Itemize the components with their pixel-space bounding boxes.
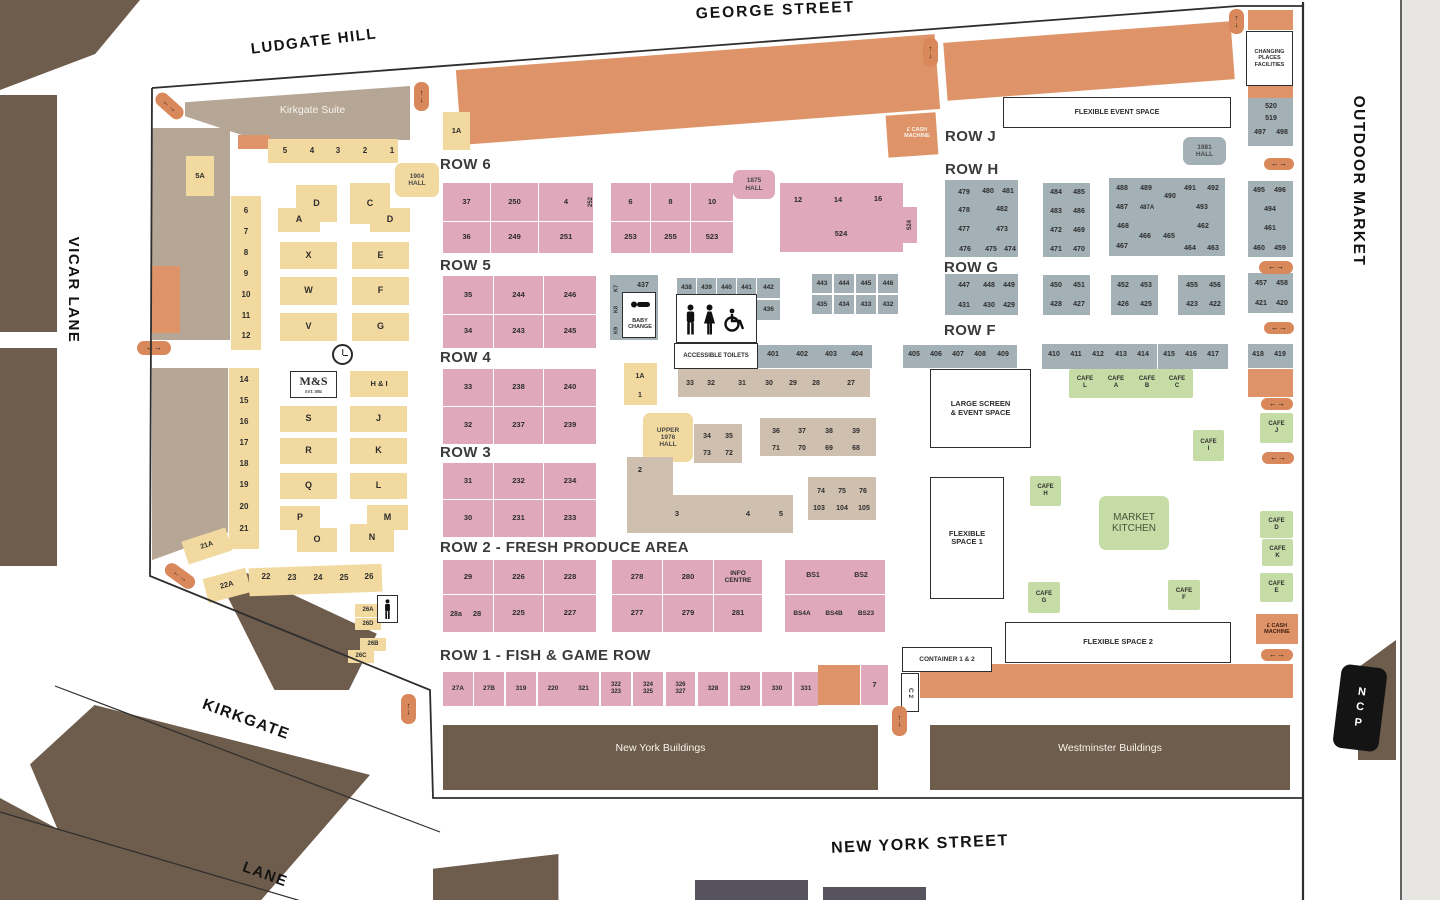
stall-37: 37 (443, 183, 490, 221)
market-floor-plan: Kirkgate SuiteNew York BuildingsWestmins… (0, 0, 1440, 900)
cafe-k: CAFE K (1262, 539, 1293, 566)
stall-8: 8 (651, 183, 690, 221)
stall-n: N (350, 524, 394, 552)
stall-35: 35 (443, 276, 493, 314)
stall-239: 239 (544, 407, 596, 444)
stall-401: 401 (762, 350, 784, 360)
stall-32: 32 (702, 378, 720, 389)
stall-24: 24 (309, 573, 327, 584)
stall-237: 237 (494, 407, 543, 444)
stall-238: 238 (494, 369, 543, 406)
stall-20: 20 (234, 501, 254, 513)
stall-422: 422 (1205, 300, 1225, 310)
stall-324-325: 324 325 (633, 672, 663, 706)
stall-253: 253 (611, 222, 650, 253)
stall-403: 403 (820, 350, 842, 360)
stall-405: 405 (904, 350, 924, 360)
stall-16: 16 (868, 194, 888, 205)
stall-7: 7 (236, 226, 256, 238)
stall-279: 279 (663, 595, 713, 632)
stall-9: 9 (236, 268, 256, 280)
stall-6: 6 (236, 205, 256, 217)
westminster-buildings (930, 725, 1290, 790)
stall-5a: 5A (186, 156, 214, 196)
market-kitchen: MARKET KITCHEN (1099, 496, 1169, 550)
stall-w: W (280, 277, 337, 305)
cafe-i: CAFE I (1193, 430, 1224, 461)
stall-228: 228 (544, 560, 596, 594)
stall-70: 70 (793, 443, 811, 454)
cafe-d: CAFE D (1260, 511, 1293, 538)
stall-402: 402 (791, 350, 813, 360)
stall-d: D (370, 208, 410, 232)
row-3-heading: ROW 3 (440, 444, 520, 462)
stall-3: 3 (330, 146, 346, 157)
stall-430: 430 (979, 301, 999, 311)
stall-71: 71 (767, 443, 785, 454)
stall-10: 10 (236, 289, 256, 301)
entrance-arrow: ↑ ↓ (923, 38, 938, 67)
stall-481: 481 (998, 187, 1018, 197)
accessible-toilets-label: ACCESSIBLE TOILETS (674, 343, 758, 369)
stall-455: 455 (1182, 281, 1202, 291)
female-icon (703, 304, 716, 336)
large-screen-event-space: LARGE SCREEN & EVENT SPACE (930, 369, 1031, 448)
stall-486: 486 (1069, 207, 1089, 217)
stall-30: 30 (443, 500, 493, 537)
stall-k8: K8 (613, 300, 622, 320)
cafe-j: CAFE J (1260, 413, 1293, 443)
stall-331: 331 (794, 672, 818, 706)
stall-456: 456 (1205, 281, 1225, 291)
stall-3: 3 (670, 509, 684, 520)
stall-244: 244 (494, 276, 543, 314)
stall-33: 33 (443, 369, 493, 406)
stall-490: 490 (1160, 192, 1180, 202)
stall-477: 477 (953, 225, 975, 235)
entrance-arrow: ←→ (1262, 452, 1294, 464)
stall-bs4b: BS4B (819, 608, 849, 620)
stall-1a: 1A (443, 112, 470, 150)
stall-17: 17 (234, 437, 254, 449)
ms-est-label: EST. 1884 (292, 389, 335, 395)
stall-36: 36 (443, 222, 490, 253)
flexible-space-1: FLEXIBLE SPACE 1 (930, 477, 1004, 599)
stall-252: 252 (586, 189, 596, 215)
entrance-arrow: ←→ (1264, 322, 1294, 334)
ludgate-hill: LUDGATE HILL (237, 21, 391, 63)
stall-495: 495 (1249, 186, 1269, 196)
stall-69: 69 (820, 443, 838, 454)
stall-21: 21 (234, 523, 254, 535)
stall-493: 493 (1192, 203, 1212, 213)
stall-104: 104 (831, 503, 853, 514)
wheelchair-icon (723, 308, 746, 334)
stall-f: F (352, 277, 409, 305)
entrance-arrow: ↑ ↓ (414, 82, 429, 111)
cash-machine-right: £ CASH MACHINE (1256, 614, 1298, 644)
stall-482: 482 (991, 205, 1013, 215)
flexible-event-space: FLEXIBLE EVENT SPACE (1003, 97, 1231, 128)
ms-label: M&S (292, 374, 335, 389)
stall-469: 469 (1069, 226, 1089, 236)
stall-460: 460 (1249, 244, 1269, 254)
row-1-heading: ROW 1 - FISH & GAME ROW (440, 647, 700, 665)
hall-1981: 1981 HALL (1183, 137, 1226, 165)
cafe-l: CAFE L (1070, 372, 1100, 394)
entrance-arrow: ←→ (1259, 261, 1293, 274)
stall-36: 36 (767, 426, 785, 437)
stall-73: 73 (698, 448, 716, 459)
stall-28: 28 (468, 609, 486, 620)
building-fragment (695, 880, 808, 900)
st-taupe (627, 495, 793, 533)
stall-426: 426 (1113, 300, 1133, 310)
stall-10: 10 (691, 183, 733, 221)
entrance-arrow: ↑ ↓ (892, 706, 907, 736)
stall-470: 470 (1069, 245, 1089, 255)
st-orange (1248, 85, 1293, 98)
stall-4: 4 (304, 146, 320, 157)
stall-429: 429 (999, 301, 1019, 311)
stall-26c: 26C (348, 650, 374, 663)
new-york-buildings (443, 725, 878, 790)
stall-485: 485 (1069, 188, 1089, 198)
vicar-lane: VICAR LANE (61, 231, 85, 349)
stall-29: 29 (784, 378, 802, 389)
stall-406: 406 (926, 350, 946, 360)
stall-416: 416 (1181, 350, 1201, 360)
cafe-f: CAFE F (1168, 580, 1200, 610)
hall-1875: 1875 HALL (733, 170, 775, 199)
stall-444: 444 (834, 274, 854, 293)
cafe-c: CAFE C (1162, 372, 1192, 394)
stall-419: 419 (1270, 350, 1290, 360)
stall-34: 34 (698, 431, 716, 442)
st-orange (1248, 10, 1293, 30)
stall-410: 410 (1044, 350, 1064, 360)
stall-278: 278 (612, 560, 662, 594)
stall-74: 74 (812, 486, 830, 497)
stall-234: 234 (544, 463, 596, 499)
stall-p: P (280, 506, 320, 530)
stall-404: 404 (846, 350, 868, 360)
stall-25: 25 (335, 573, 353, 584)
row-2-heading: ROW 2 - FRESH PRODUCE AREA (440, 539, 720, 557)
stall-75: 75 (833, 486, 851, 497)
entrance-arrow: ←→ (162, 560, 198, 591)
stall-x: X (280, 242, 337, 269)
stall-38: 38 (820, 426, 838, 437)
stall-487: 487 (1112, 203, 1132, 213)
stall-321: 321 (568, 672, 599, 706)
entrance-arrow: ←→ (1264, 158, 1294, 170)
stall-476: 476 (954, 245, 976, 255)
stall-407: 407 (948, 350, 968, 360)
stall-450: 450 (1046, 281, 1066, 291)
stall-27b: 27B (474, 672, 504, 706)
row-4-heading: ROW 4 (440, 349, 520, 367)
stall-408: 408 (970, 350, 990, 360)
cafe-a: CAFE A (1101, 372, 1131, 394)
stall-451: 451 (1069, 281, 1089, 291)
orange-strip-west (151, 266, 180, 333)
stall-523: 523 (691, 222, 733, 253)
stall-227: 227 (544, 595, 596, 632)
male-icon (685, 304, 696, 336)
stall-435: 435 (812, 295, 832, 314)
stall-465: 465 (1159, 232, 1179, 242)
stall-o: O (297, 528, 337, 552)
st-orange (818, 665, 860, 705)
stall-520: 520 (1259, 102, 1283, 112)
stall-483: 483 (1046, 207, 1066, 217)
stall-492: 492 (1203, 184, 1223, 194)
offmap-right (1402, 0, 1440, 900)
row-5-heading: ROW 5 (440, 257, 520, 275)
info-centre: INFO CENTRE (714, 560, 762, 594)
row-j-heading: ROW J (945, 128, 1025, 146)
stall-225: 225 (494, 595, 543, 632)
stall-411: 411 (1066, 350, 1086, 360)
stall-442: 442 (757, 278, 780, 298)
top-band-west (456, 34, 940, 145)
cash-machine-top-label: £ CASH MACHINE (894, 122, 940, 144)
stall-26: 26 (360, 572, 378, 583)
stall-447: 447 (953, 281, 975, 291)
new-york-buildings-label: New York Buildings (443, 742, 878, 756)
stall-413: 413 (1111, 350, 1131, 360)
top-band-east (943, 21, 1235, 100)
stall-q: Q (280, 473, 337, 499)
stall-457: 457 (1251, 279, 1271, 289)
stall-414: 414 (1133, 350, 1153, 360)
stall-436: 436 (757, 300, 780, 320)
baby-change-icon (629, 298, 653, 311)
building-vicar-south (0, 348, 57, 566)
stall-72: 72 (720, 448, 738, 459)
stall-433: 433 (856, 295, 876, 314)
stall-19: 19 (234, 479, 254, 491)
stall-409: 409 (993, 350, 1013, 360)
stall-488: 488 (1112, 184, 1132, 194)
stall-461: 461 (1259, 224, 1281, 234)
stall-489: 489 (1136, 184, 1156, 194)
stall-1: 1 (384, 146, 400, 157)
stall-29: 29 (443, 560, 493, 594)
stall-22: 22 (257, 572, 275, 583)
row-h-heading: ROW H (945, 161, 1025, 179)
stall-319: 319 (506, 672, 536, 706)
stall-33: 33 (681, 378, 699, 389)
container-1-2: CONTAINER 1 & 2 (902, 647, 992, 672)
stall-322-323: 322 323 (601, 672, 631, 706)
entrance-arrow: ↑ ↓ (401, 694, 416, 724)
stall-421: 421 (1251, 299, 1271, 309)
stall-15: 15 (234, 395, 254, 407)
stall-464: 464 (1180, 244, 1200, 254)
stall-231: 231 (494, 500, 543, 537)
stall-458: 458 (1272, 279, 1292, 289)
stall-k: K (350, 438, 407, 464)
stall-468: 468 (1113, 222, 1133, 232)
stall-g: G (352, 313, 409, 341)
stall-446: 446 (878, 274, 898, 293)
stall-23: 23 (283, 573, 301, 584)
stall-240: 240 (544, 369, 596, 406)
stall-1a: 1A (630, 371, 650, 382)
stall-bs23: BS23 (851, 608, 881, 620)
stall-496: 496 (1270, 186, 1290, 196)
stall-471: 471 (1046, 245, 1066, 255)
stall-4: 4 (741, 509, 755, 520)
stall-27: 27 (842, 378, 860, 389)
stall-31: 31 (443, 463, 493, 499)
stall-432: 432 (878, 295, 898, 314)
stall-6: 6 (611, 183, 650, 221)
stall-420: 420 (1272, 299, 1292, 309)
stall-428: 428 (1046, 300, 1066, 310)
stall-330: 330 (762, 672, 792, 706)
stall-473: 473 (992, 225, 1012, 235)
stall-281: 281 (714, 595, 762, 632)
kirkgate-suite-label: Kirkgate Suite (250, 103, 375, 119)
stall-27a: 27A (443, 672, 473, 706)
stall-474: 474 (1000, 245, 1020, 255)
stall-105: 105 (853, 503, 875, 514)
stall-bs2: BS2 (848, 570, 874, 582)
stall-449: 449 (999, 281, 1019, 291)
cafe-e: CAFE E (1260, 573, 1293, 602)
stall-34: 34 (443, 315, 493, 348)
wc-male-icon (383, 599, 392, 620)
stall-497: 497 (1249, 128, 1271, 138)
stall-v: V (280, 313, 337, 341)
stall-35: 35 (720, 431, 738, 442)
stall-484: 484 (1046, 188, 1066, 198)
st-taupe (627, 457, 673, 498)
stall-415: 415 (1159, 350, 1179, 360)
stall-431: 431 (953, 301, 975, 311)
stall-5: 5 (277, 146, 293, 157)
entrance-arrow: ←→ (153, 90, 187, 122)
stall-480: 480 (978, 187, 998, 197)
stall-524: 524 (827, 229, 855, 240)
stall-249: 249 (491, 222, 538, 253)
stall-417: 417 (1203, 350, 1223, 360)
stall-427: 427 (1069, 300, 1089, 310)
stall-280: 280 (663, 560, 713, 594)
stall-14: 14 (828, 195, 848, 206)
building-top-left (0, 0, 140, 90)
cafe-h: CAFE H (1030, 476, 1061, 506)
stall-2: 2 (633, 465, 647, 476)
stall-l: L (350, 473, 407, 499)
changing-places: CHANGING PLACES FACILITIES (1246, 31, 1293, 86)
stall-12: 12 (236, 330, 256, 342)
stall-5: 5 (774, 509, 788, 520)
stall-326-327: 326 327 (666, 672, 695, 706)
cafe-g: CAFE G (1028, 582, 1060, 613)
hall-1904: 1904 HALL (395, 163, 439, 197)
stall-37: 37 (793, 426, 811, 437)
stall-251: 251 (539, 222, 593, 253)
stall-31: 31 (733, 378, 751, 389)
stall-491: 491 (1180, 184, 1200, 194)
entrance-arrow: ↑ ↓ (1229, 9, 1244, 34)
building-vicar-north (0, 95, 57, 332)
stall-r: R (280, 438, 337, 464)
stall-472: 472 (1046, 226, 1066, 236)
outdoor-market: OUTDOOR MARKET (1345, 100, 1371, 262)
stall-220: 220 (538, 672, 568, 706)
stall-519: 519 (1259, 114, 1283, 124)
stall-418: 418 (1248, 350, 1268, 360)
stall-h-i: H & I (350, 371, 408, 397)
stall-bs1: BS1 (800, 570, 826, 582)
stall-4: 4 (539, 183, 593, 221)
clock-icon (332, 344, 353, 365)
stall-462: 462 (1193, 222, 1213, 232)
stall-463: 463 (1203, 244, 1223, 254)
stall-328: 328 (698, 672, 728, 706)
stall-28: 28 (807, 378, 825, 389)
stall-12: 12 (788, 195, 808, 206)
stall-467: 467 (1112, 242, 1132, 252)
stall-243: 243 (494, 315, 543, 348)
stall-s: S (280, 406, 337, 432)
stall-246: 246 (544, 276, 596, 314)
building-bottom-center (433, 854, 561, 900)
stall-1: 1 (630, 390, 650, 401)
stall-28a: 28a (445, 609, 467, 620)
cafe-b: CAFE B (1132, 372, 1162, 394)
stall-487a: 487A (1134, 203, 1160, 213)
stall-423: 423 (1182, 300, 1202, 310)
stall-498: 498 (1271, 128, 1293, 138)
stall-425: 425 (1136, 300, 1156, 310)
stall-30: 30 (760, 378, 778, 389)
stall-453: 453 (1136, 281, 1156, 291)
stall-443: 443 (812, 274, 832, 293)
stall-277: 277 (612, 595, 662, 632)
stall-a: A (278, 208, 320, 232)
baby-change-label: BABY CHANGE (624, 315, 656, 333)
stall-479: 479 (953, 188, 975, 198)
westminster-buildings-label: Westminster Buildings (930, 742, 1290, 756)
building-fragment (823, 887, 926, 900)
stall-524: 524 (905, 211, 915, 239)
stall-437: 437 (630, 281, 656, 291)
stall-39: 39 (847, 426, 865, 437)
stall-11: 11 (236, 310, 256, 322)
st-orange (238, 135, 270, 149)
stall-76: 76 (854, 486, 872, 497)
stall-233: 233 (544, 500, 596, 537)
stall-k9: K9 (613, 321, 622, 341)
george-street: GEORGE STREET (688, 0, 864, 26)
stall-8: 8 (236, 247, 256, 259)
stall-18: 18 (234, 458, 254, 470)
stall-68: 68 (847, 443, 865, 454)
stall-e: E (352, 242, 409, 269)
entrance-arrow: ←→ (1261, 398, 1293, 410)
stall-434: 434 (834, 295, 854, 314)
stall-475: 475 (981, 245, 1001, 255)
stall-459: 459 (1270, 244, 1290, 254)
stall-16: 16 (234, 416, 254, 428)
flexible-space-2: FLEXIBLE SPACE 2 (1005, 622, 1231, 663)
